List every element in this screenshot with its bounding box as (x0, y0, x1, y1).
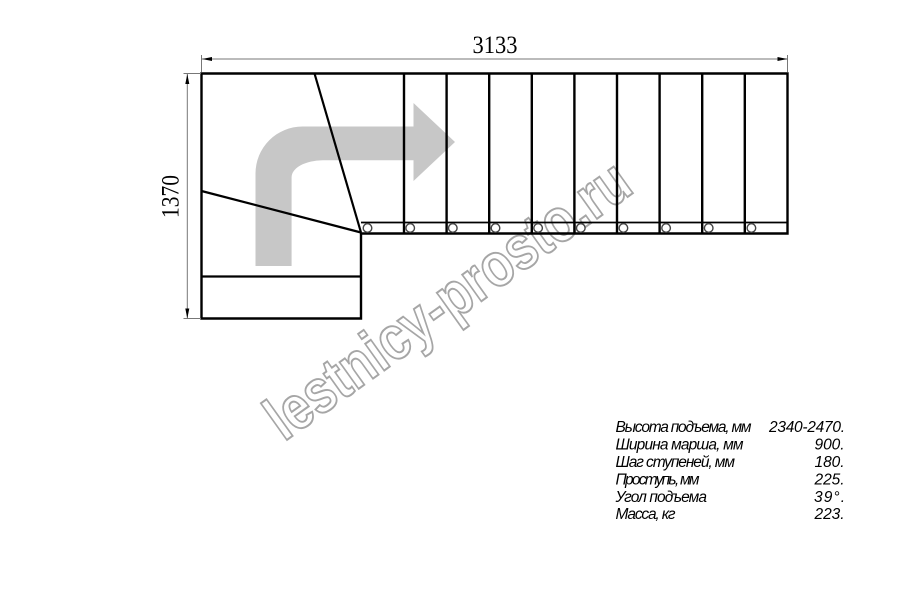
svg-text:Проступь, мм: Проступь, мм (616, 472, 700, 489)
svg-text:2340-2470.: 2340-2470. (768, 419, 845, 436)
svg-text:900.: 900. (815, 437, 845, 454)
svg-text:Ширина марша, мм: Ширина марша, мм (616, 437, 744, 454)
svg-text:lestnicy-prosto.ru: lestnicy-prosto.ru (252, 146, 644, 453)
svg-text:Угол подъема: Угол подъема (615, 489, 708, 506)
svg-text:225.: 225. (814, 472, 845, 489)
svg-text:180.: 180. (815, 454, 845, 471)
svg-text:Высота подъема, мм: Высота подъема, мм (616, 419, 752, 436)
svg-text:Шаг ступеней, мм: Шаг ступеней, мм (616, 454, 736, 471)
svg-text:3133: 3133 (473, 32, 518, 59)
svg-text:39°.: 39°. (814, 489, 845, 506)
svg-text:Масса, кг: Масса, кг (616, 506, 676, 523)
svg-text:223.: 223. (814, 506, 845, 523)
svg-text:1370: 1370 (158, 175, 185, 218)
